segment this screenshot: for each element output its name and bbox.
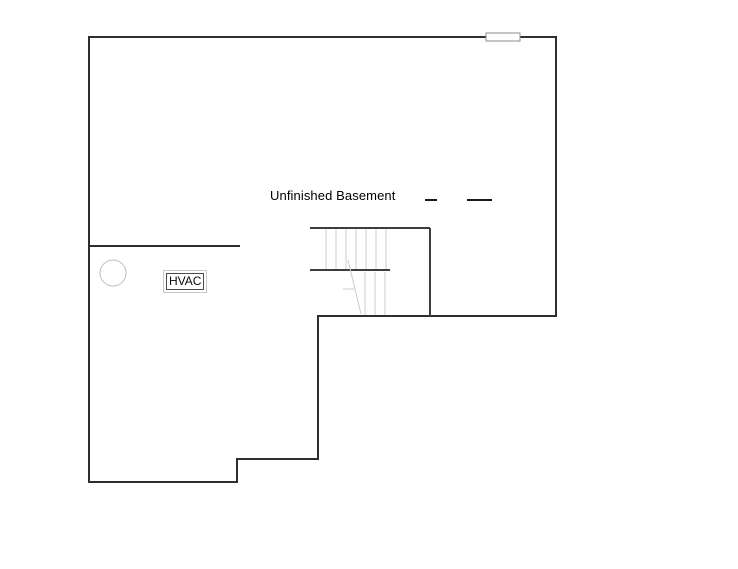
- round-fixture-circle: [100, 260, 126, 286]
- stair-walls-group: [310, 228, 430, 316]
- outer-wall-outline: [89, 37, 556, 482]
- stair-treads-upper: [326, 229, 386, 269]
- outer-walls-group: [89, 37, 556, 482]
- hvac-annotation-box: HVAC: [163, 270, 207, 293]
- stair-direction-line: [348, 260, 361, 314]
- floor-plan-page: Unfinished Basement HVAC: [0, 0, 738, 569]
- room-label: Unfinished Basement: [270, 189, 395, 203]
- window-marker: [486, 33, 520, 41]
- stair-treads-lower: [365, 272, 385, 315]
- stair-treads-group: [326, 229, 386, 315]
- hvac-label: HVAC: [166, 273, 204, 290]
- floor-plan-drawing: [0, 0, 738, 569]
